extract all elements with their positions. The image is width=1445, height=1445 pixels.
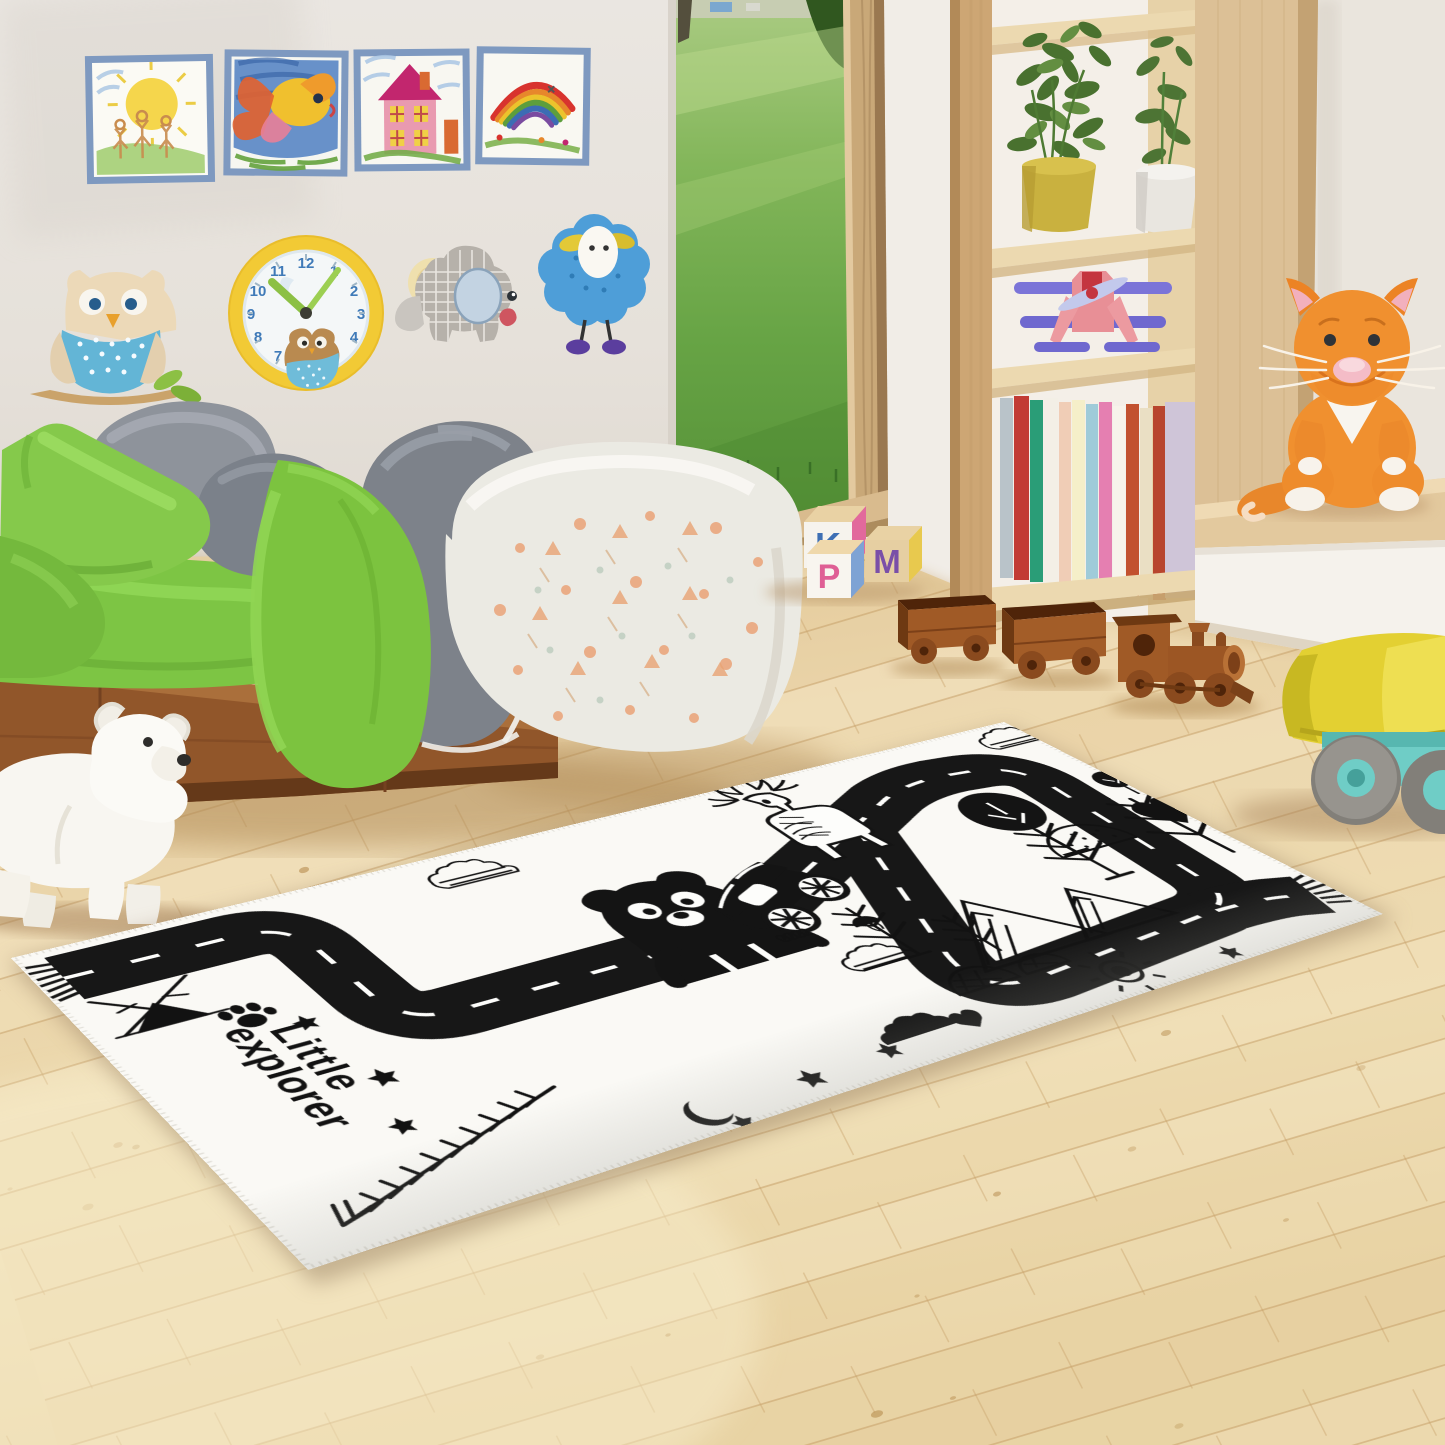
svg-text:4: 4 <box>350 329 359 346</box>
svg-text:9: 9 <box>247 306 255 323</box>
svg-text:8: 8 <box>254 329 262 346</box>
svg-text:M: M <box>873 543 901 580</box>
svg-text:P: P <box>818 558 841 596</box>
svg-text:3: 3 <box>357 306 365 323</box>
